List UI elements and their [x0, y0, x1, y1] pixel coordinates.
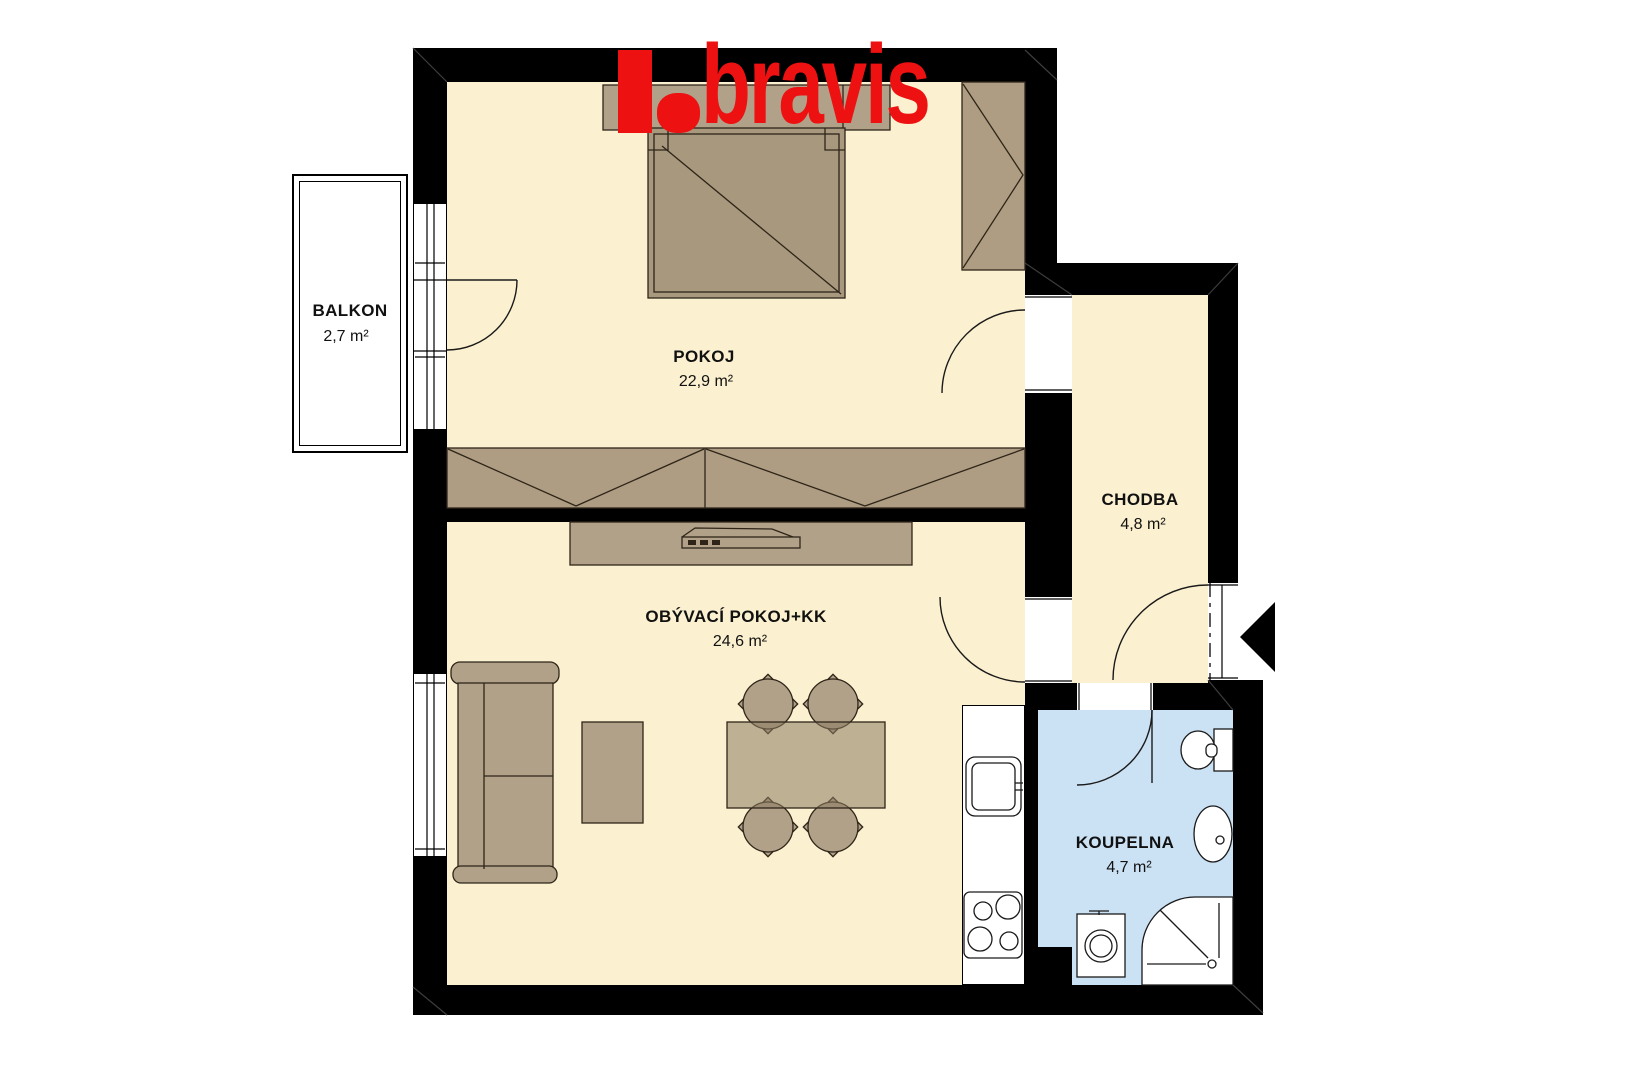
- label-obyvaci: OBÝVACÍ POKOJ+KK: [645, 607, 826, 627]
- logo-mark-dot-icon: [657, 93, 700, 133]
- plan-symbols: [0, 0, 1635, 1086]
- stove-icon: [964, 892, 1022, 958]
- entrance-arrow-icon: [1240, 602, 1275, 672]
- label-koupelna: KOUPELNA: [1076, 833, 1175, 853]
- corner-wardrobe-icon: [962, 82, 1025, 270]
- label-balkon-area: 2,7 m²: [323, 328, 368, 346]
- label-chodba: CHODBA: [1101, 490, 1178, 510]
- bathroom-sink-icon: [1194, 806, 1232, 862]
- coffee-table-icon: [582, 722, 643, 823]
- toilet-icon: [1181, 729, 1233, 771]
- door-arc-balcony: [447, 280, 517, 350]
- shower-icon: [1142, 897, 1233, 985]
- tv-cabinet-icon: [570, 522, 912, 565]
- door-arc-entrance: [1113, 585, 1208, 680]
- wardrobe-row-icon: [447, 448, 1025, 508]
- floor-plan: BALKON 2,7 m² POKOJ 22,9 m² CHODBA 4,8 m…: [0, 0, 1635, 1086]
- label-chodba-area: 4,8 m²: [1120, 516, 1165, 534]
- logo-text: bravis: [701, 29, 929, 141]
- label-koupelna-area: 4,7 m²: [1106, 859, 1151, 877]
- logo-mark-bar-icon: [618, 50, 652, 133]
- sofa-icon: [451, 662, 559, 883]
- label-pokoj-area: 22,9 m²: [679, 373, 733, 391]
- washing-machine-icon: [1077, 911, 1125, 977]
- kitchen-sink-icon: [966, 757, 1023, 816]
- door-arc-living: [940, 597, 1025, 682]
- dining-set-icon: [727, 674, 885, 856]
- double-bed-icon: [648, 128, 845, 298]
- label-obyvaci-area: 24,6 m²: [713, 633, 767, 651]
- label-pokoj: POKOJ: [673, 347, 735, 367]
- door-arc-koupelna: [1077, 710, 1152, 785]
- label-balkon: BALKON: [312, 301, 387, 321]
- door-arc-pokoj: [942, 310, 1025, 393]
